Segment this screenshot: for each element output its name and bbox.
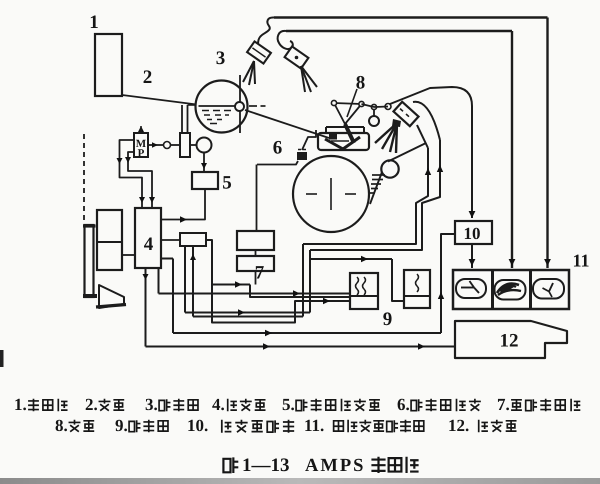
svg-text:9.: 9. — [115, 416, 128, 435]
svg-text:5: 5 — [222, 172, 232, 193]
svg-text:2.: 2. — [85, 395, 98, 414]
svg-text:AMPS: AMPS — [305, 456, 365, 476]
svg-text:1: 1 — [89, 12, 99, 33]
svg-text:7.: 7. — [497, 395, 510, 414]
svg-text:6.: 6. — [397, 395, 410, 414]
svg-text:3: 3 — [216, 48, 226, 69]
svg-text:6: 6 — [273, 137, 283, 158]
svg-text:11: 11 — [572, 251, 589, 271]
svg-text:1.: 1. — [14, 395, 27, 414]
svg-text:P: P — [138, 147, 145, 159]
svg-text:11.: 11. — [304, 416, 324, 435]
svg-text:12.: 12. — [448, 416, 469, 435]
svg-text:12: 12 — [499, 331, 518, 352]
svg-text:5.: 5. — [282, 395, 295, 414]
svg-text:9: 9 — [383, 309, 393, 330]
svg-text:10.: 10. — [187, 416, 208, 435]
svg-text:4.: 4. — [212, 395, 225, 414]
svg-text:4: 4 — [144, 234, 154, 255]
svg-text:1—13: 1—13 — [242, 455, 290, 476]
svg-text:8.: 8. — [55, 416, 68, 435]
svg-text:3.: 3. — [145, 395, 158, 414]
svg-text:10: 10 — [464, 224, 481, 243]
svg-text:2: 2 — [143, 67, 153, 88]
